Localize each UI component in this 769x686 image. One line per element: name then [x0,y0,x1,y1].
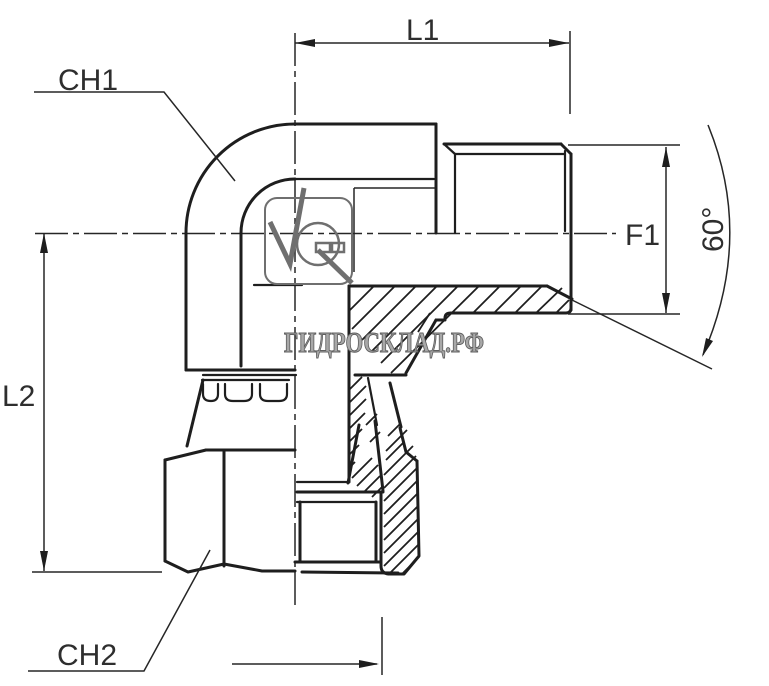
svg-text:60°: 60° [697,207,730,252]
svg-text:F1: F1 [625,219,660,252]
svg-text:L2: L2 [2,380,35,413]
svg-text:L1: L1 [406,14,439,47]
svg-text:ГИДРОСКЛАД.РФ: ГИДРОСКЛАД.РФ [284,328,484,359]
svg-text:CH2: CH2 [57,639,117,672]
